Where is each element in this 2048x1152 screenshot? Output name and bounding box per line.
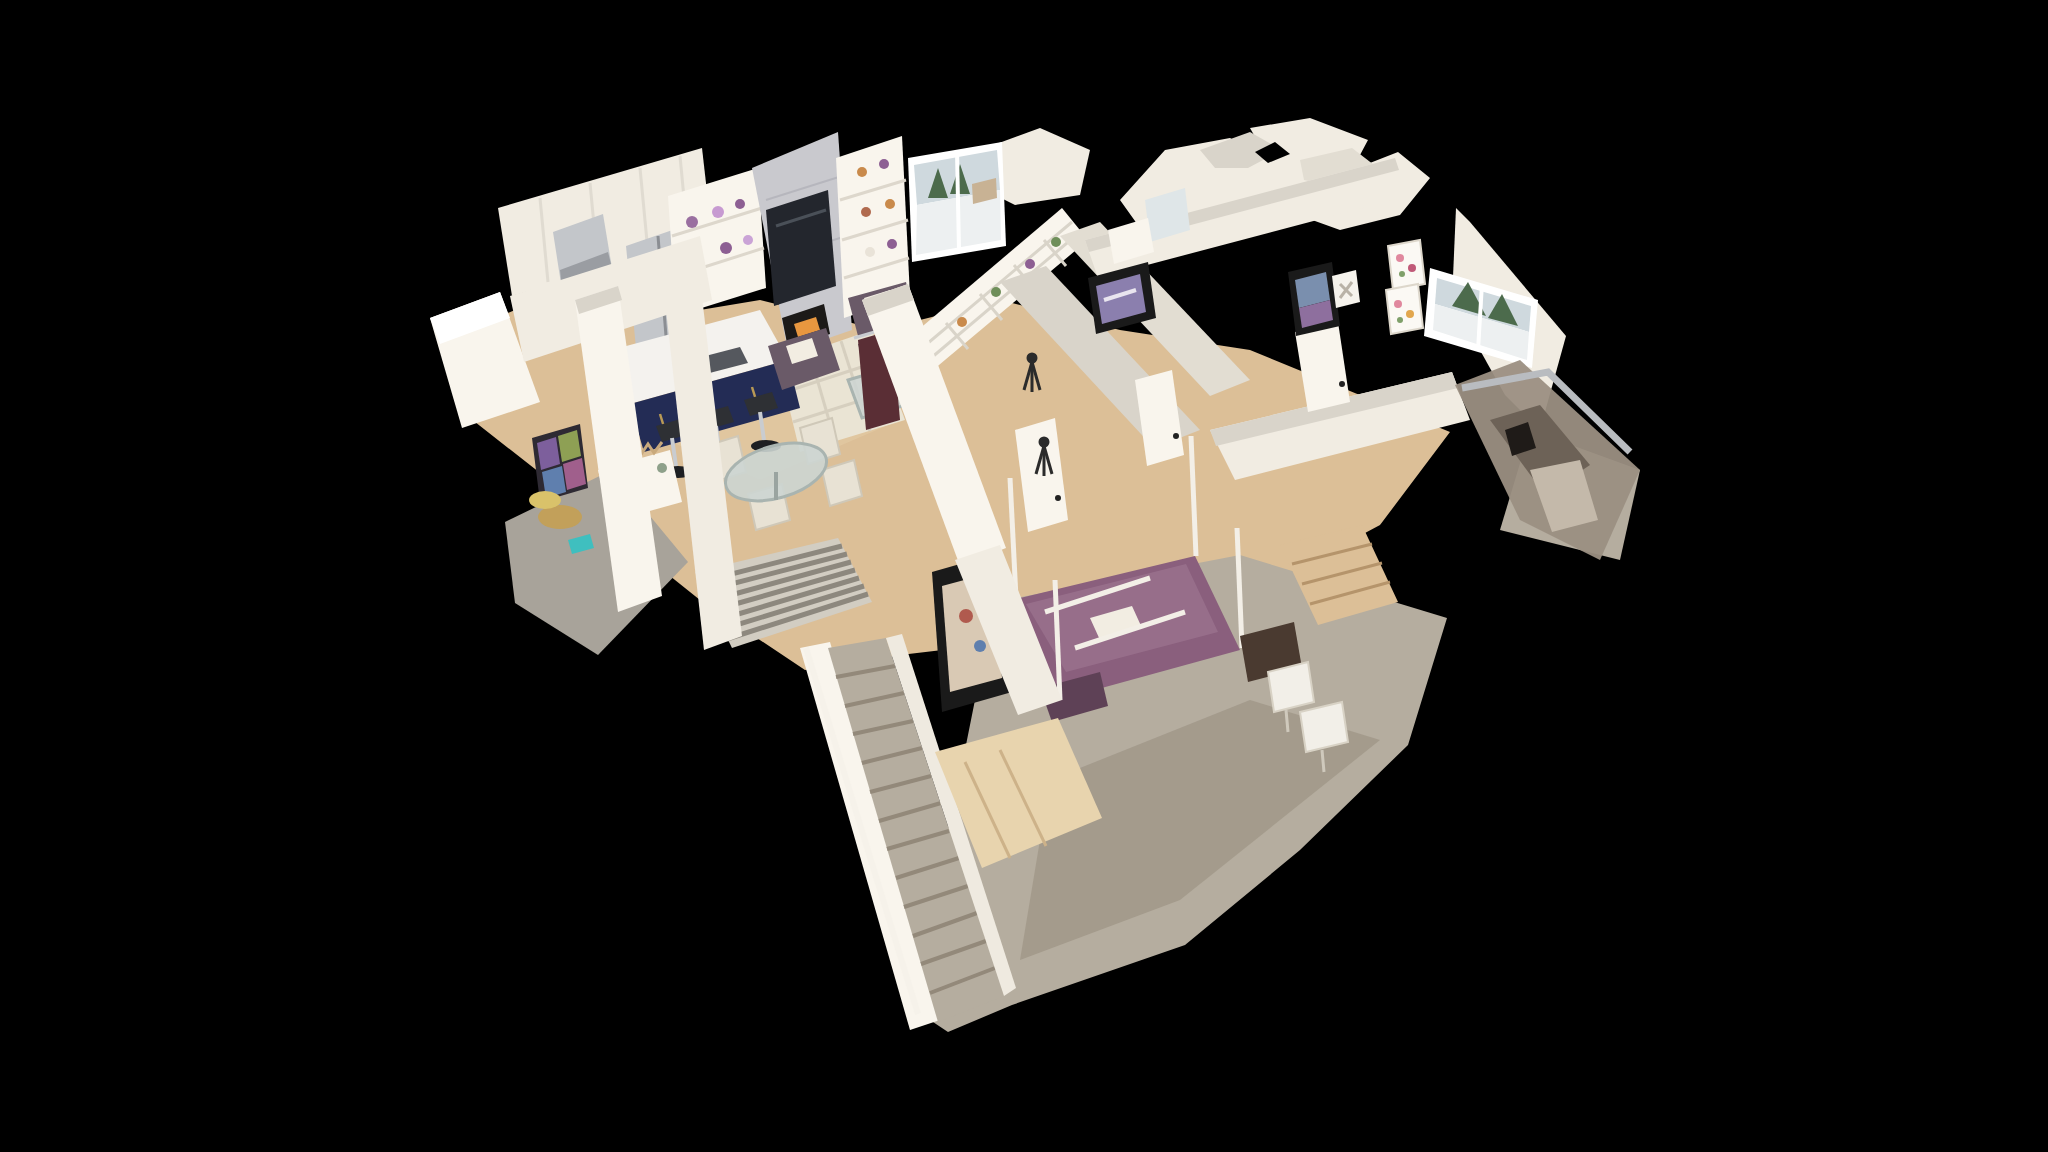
floral-art-panels bbox=[1386, 240, 1425, 334]
tv-screen bbox=[766, 190, 836, 306]
yellow-hat bbox=[529, 491, 561, 509]
dollhouse-viewport[interactable] bbox=[0, 0, 2048, 1152]
dollhouse-model[interactable] bbox=[0, 0, 2048, 1152]
bedroom-abstract-art bbox=[1288, 262, 1340, 336]
living-window bbox=[908, 142, 1006, 262]
stained-glass-window bbox=[532, 424, 588, 502]
starfish-art bbox=[1332, 270, 1360, 308]
